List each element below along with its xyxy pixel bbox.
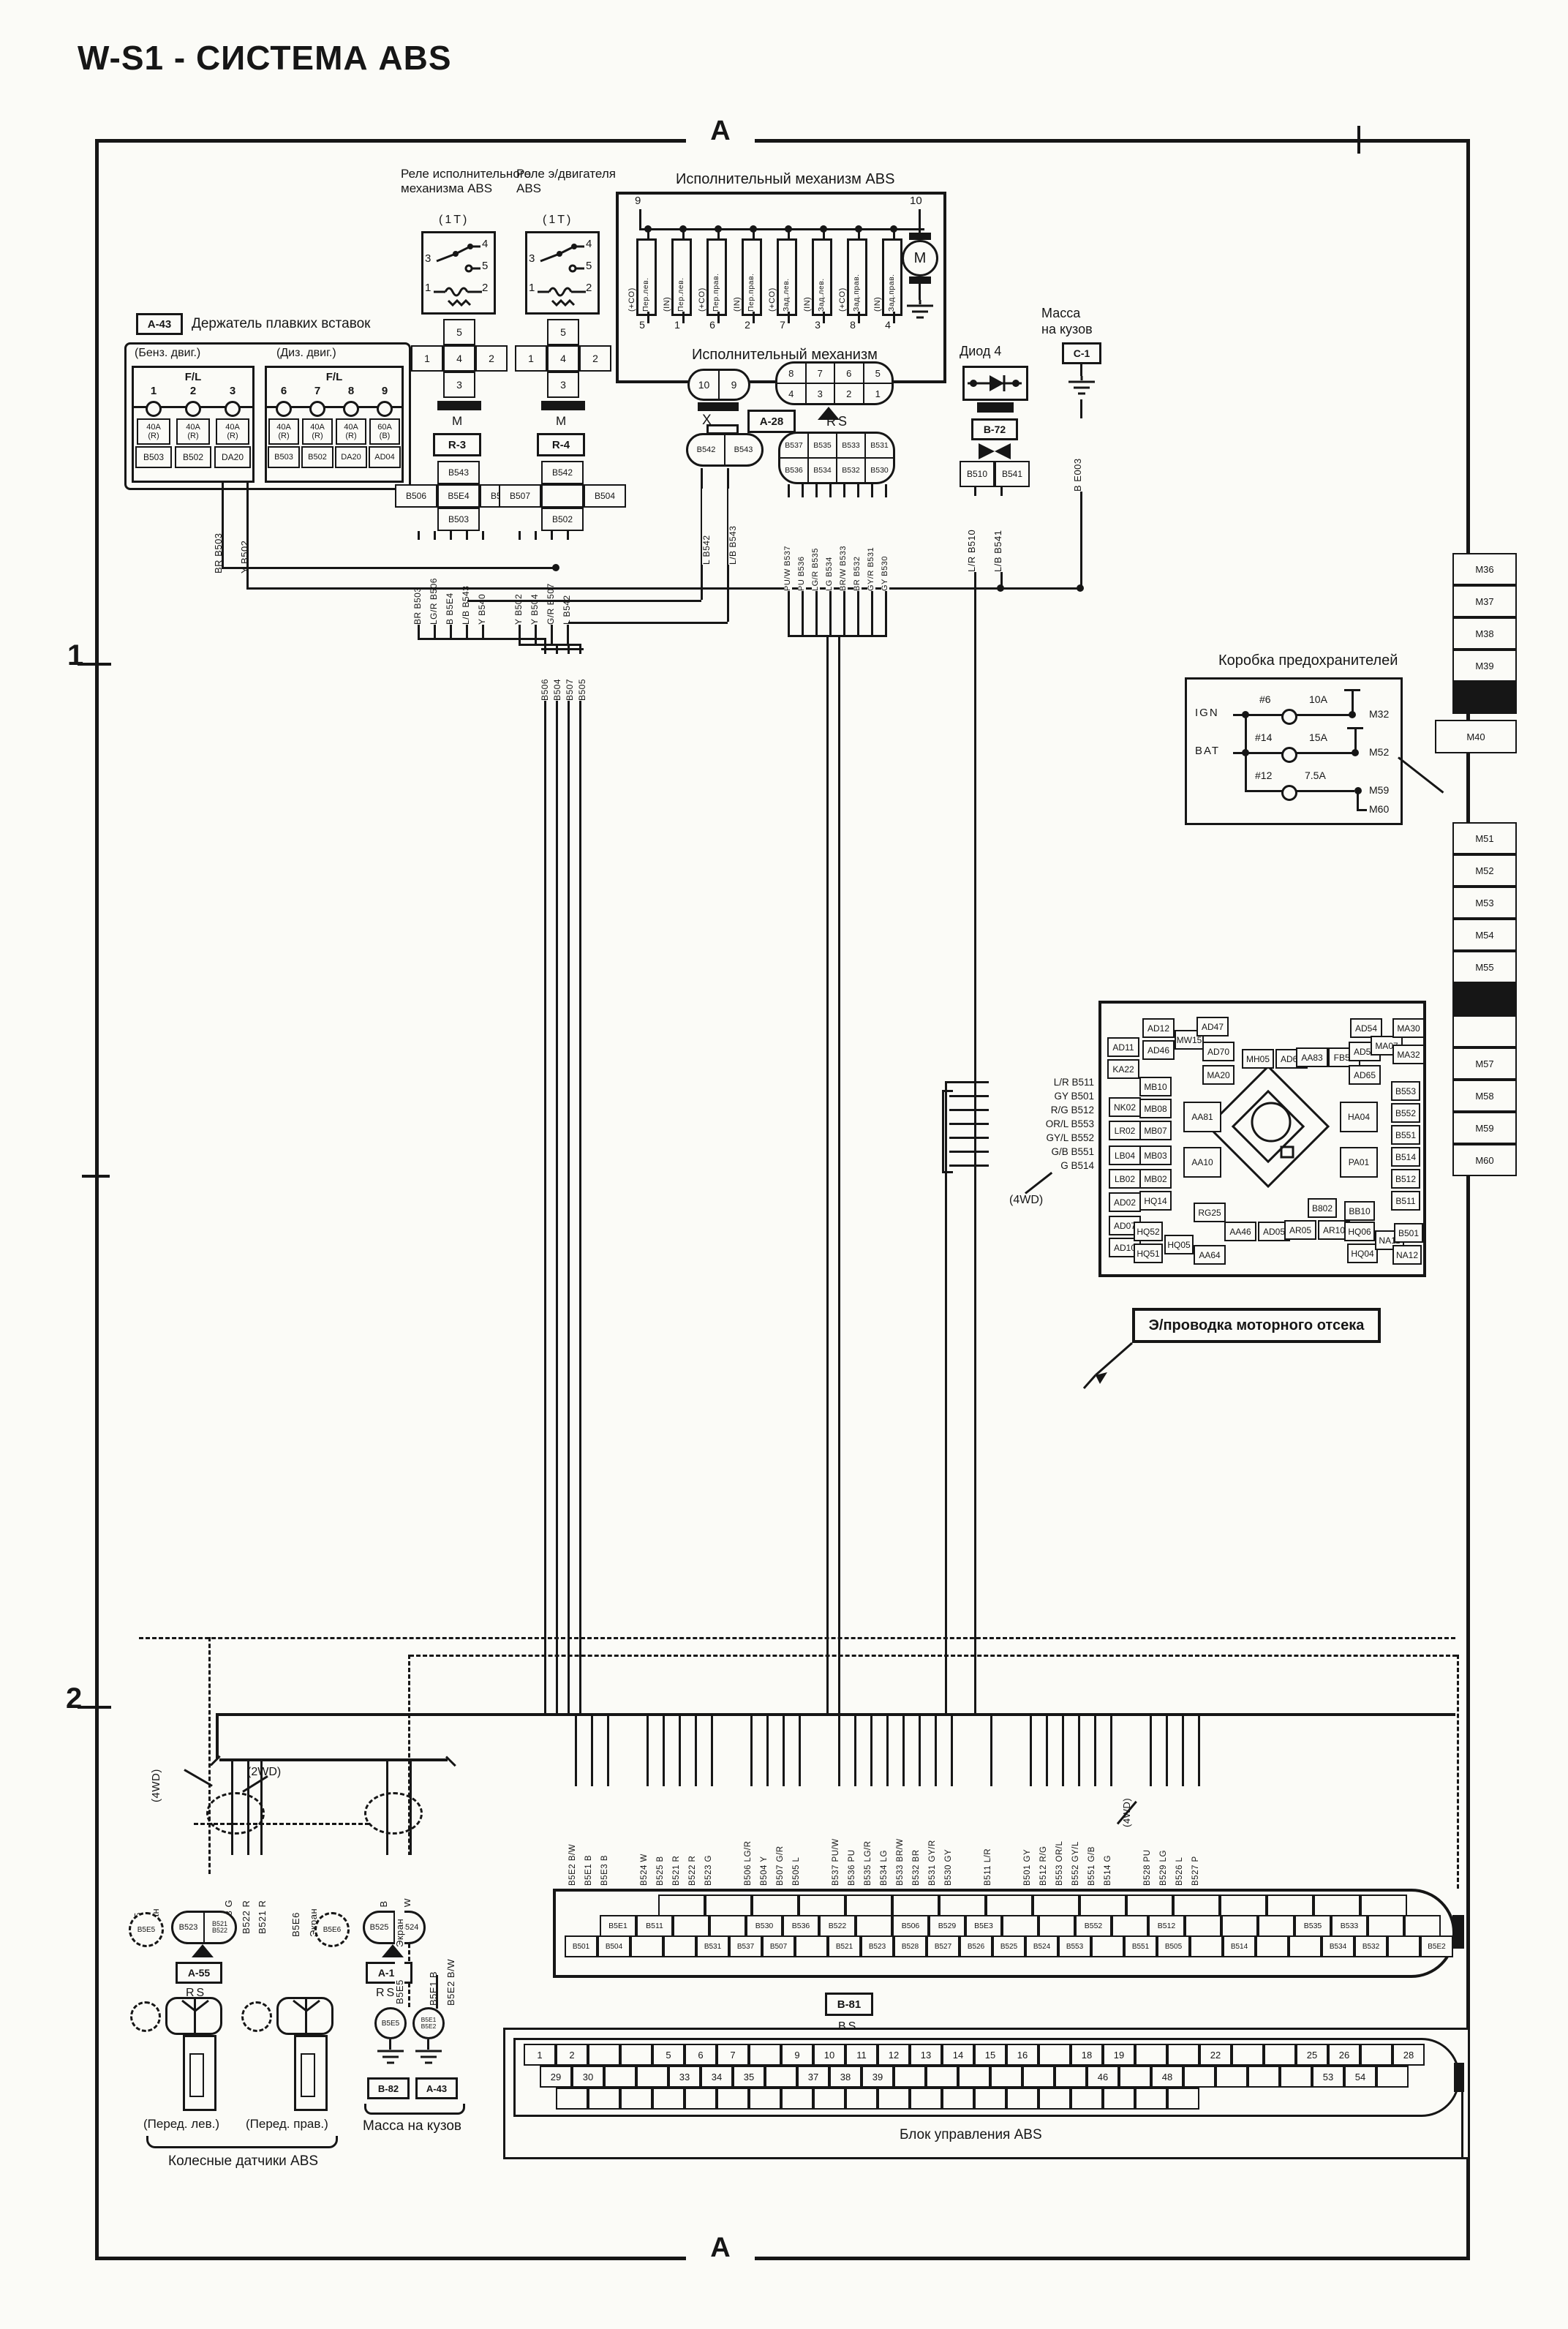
m-connector: M57 <box>1452 1047 1517 1080</box>
ecu-cell: B529 <box>929 1915 965 1937</box>
solenoid-pin: 5 <box>639 319 645 331</box>
fusebox-ign: IGN <box>1195 707 1219 719</box>
gnd-top-caption: Масса <box>1041 306 1080 321</box>
ecu-cell: B553 <box>1058 1935 1091 1957</box>
panel-connector: B514 <box>1391 1147 1420 1167</box>
wire-label: GY B530 <box>881 497 889 591</box>
diode-box <box>962 366 1028 401</box>
ecu-cell <box>799 1895 845 1916</box>
shield-conn: B5E6 <box>314 1912 350 1947</box>
ecu-cell: B526 <box>960 1935 992 1957</box>
fuse-sym <box>1281 747 1297 763</box>
wire-label: B504 Y <box>761 1786 769 1886</box>
relay2-wire-labels: Y B502Y B504G/R B507L B542 <box>510 540 575 625</box>
relay-pin: 5 <box>482 260 488 272</box>
ecu-cell: B552 <box>1075 1915 1112 1937</box>
fuse-symbol <box>146 401 162 417</box>
panel-connector: AD70 <box>1202 1042 1235 1061</box>
pin-number <box>1022 2066 1055 2088</box>
actuator-title: Исполнительный механизм ABS <box>676 171 894 188</box>
wire-label: B522 R <box>241 1855 251 1934</box>
pin-row-3 <box>556 2088 1199 2110</box>
pin-number <box>974 2088 1006 2110</box>
sensor-ring <box>241 2001 272 2032</box>
pin10-label: 10 <box>910 195 922 207</box>
shield-label: Экран <box>395 1896 404 1947</box>
junction-dot <box>1077 584 1084 592</box>
pin-number: 10 <box>813 2044 845 2066</box>
conn-cell: B536 <box>780 459 807 482</box>
fuse-number: 2 <box>190 385 196 397</box>
sensor-caption-right: (Перед. прав.) <box>246 2117 328 2132</box>
solenoid-pin: 7 <box>780 319 785 331</box>
antenna <box>1344 689 1360 691</box>
solenoid: (IN) Зад.лев. 3 <box>800 233 835 342</box>
pin-number: 18 <box>1071 2044 1103 2066</box>
ecu-cell <box>1221 1915 1258 1937</box>
wire <box>1245 790 1354 792</box>
wire-label: G/B B551 <box>989 1146 1094 1160</box>
wire-label: Y B504 <box>530 540 539 625</box>
ecu-cell <box>1387 1935 1420 1957</box>
shield-link-dashed <box>194 1823 369 1825</box>
m-connector: M37 <box>1452 585 1517 617</box>
pin-number <box>652 2088 685 2110</box>
pin-number <box>1039 2044 1071 2066</box>
pin-cell: B5E4 <box>437 484 480 508</box>
ecu-cell: B532 <box>1354 1935 1387 1957</box>
pin-number <box>1376 2066 1409 2088</box>
fuse-number: 3 <box>230 385 235 397</box>
wire <box>389 2039 391 2050</box>
conn-cell: B525 <box>365 1913 393 1942</box>
ecu-cell <box>663 1935 696 1957</box>
wire-label: Y B502 <box>514 540 523 625</box>
panel-connector: AD02 <box>1109 1192 1141 1212</box>
m-connector: M53 <box>1452 887 1517 919</box>
rs-wire-labels: PU/W B537PU B536LG/R B535LG B534BR/W B53… <box>781 497 892 591</box>
relay1-conn-bot: 3 <box>443 372 475 398</box>
conn-cell: B532 <box>836 459 864 482</box>
callout-arrow <box>1074 1340 1139 1399</box>
pin-number: 13 <box>910 2044 942 2066</box>
conn-cell: 8 <box>777 364 805 383</box>
wire <box>1080 364 1082 376</box>
ecu-cell <box>1002 1915 1039 1937</box>
fuse-sym <box>1281 785 1297 801</box>
wire <box>1357 809 1367 811</box>
wire-label: B E003 <box>1073 418 1082 492</box>
conn-cell: 2 <box>579 345 611 372</box>
pin-number: 29 <box>540 2066 572 2088</box>
ecu-cell <box>658 1895 705 1916</box>
petrol-caption: (Бенз. двиг.) <box>135 347 200 360</box>
ground-icon <box>1067 376 1096 398</box>
connector-key <box>698 402 739 411</box>
petrol-box: F/L 123 40A(R) 40A(R) 40A(R) B503B502DA2… <box>132 366 255 483</box>
solenoid-pin: 1 <box>674 319 680 331</box>
panel-connector: PA01 <box>1340 1147 1378 1178</box>
solenoid-mode: (+CO) <box>698 238 706 312</box>
pin-number: 22 <box>1199 2044 1232 2066</box>
fusebox-title: Коробка предохранителей <box>1218 652 1398 669</box>
ecu-cell: B523 <box>861 1935 894 1957</box>
panel-connector: B552 <box>1391 1103 1420 1123</box>
conn-cell: B521 B522 <box>203 1913 235 1942</box>
ecu-cell <box>986 1895 1033 1916</box>
wheel-sensors-caption: Колесные датчики ABS <box>168 2153 318 2170</box>
m-strip-top: M36M37M38M39 <box>1452 553 1517 714</box>
pin-number: 38 <box>829 2066 862 2088</box>
fusebox-out: M52 <box>1369 746 1389 758</box>
fuse-pin-id: B502 <box>301 446 333 468</box>
shield-ellipse <box>364 1792 423 1835</box>
ecu-tab <box>1452 1915 1464 1949</box>
ecu-cell: B534 <box>1322 1935 1354 1957</box>
tick <box>1357 126 1360 154</box>
ground-icon <box>905 300 935 322</box>
panel-connector: RG25 <box>1194 1203 1226 1222</box>
panel-connector: B512 <box>1391 1169 1420 1189</box>
panel-connector: LB02 <box>1109 1169 1141 1189</box>
note-4wd-vert: (4WD) <box>151 1720 162 1802</box>
m-strip-bottom: M51M52M53M54M55M57M58M59M60 <box>1452 822 1517 1176</box>
panel-connector: MB10 <box>1139 1077 1172 1096</box>
wire <box>418 638 546 640</box>
pin-number <box>749 2044 781 2066</box>
relay-pin: 4 <box>586 238 592 250</box>
wire <box>216 1713 219 1758</box>
trunk-wire <box>974 487 976 1713</box>
wire-label: B530 GY <box>945 1786 954 1886</box>
fuse-holder-title: Держатель плавких вставок <box>192 316 371 332</box>
solenoid-pin: 4 <box>885 319 891 331</box>
wire-label: B514 G <box>1104 1786 1113 1886</box>
wire <box>436 1975 438 2009</box>
connector-tab <box>706 424 739 434</box>
wire-label: L B542 <box>702 489 711 565</box>
fuse-rating: 40A(R) <box>137 418 170 445</box>
ecu-cell: B531 <box>696 1935 729 1957</box>
trunk-wire <box>826 635 829 1713</box>
panel-connector: NA12 <box>1392 1245 1422 1265</box>
connector-id-a55: A-55 <box>176 1962 222 1984</box>
ecu-cell: B504 <box>598 1935 630 1957</box>
fuse-number: 6 <box>281 385 287 397</box>
pin-number: 1 <box>524 2044 556 2066</box>
pin-cell: B504 <box>584 484 626 508</box>
pin-number <box>813 2088 845 2110</box>
fuse-number: 9 <box>382 385 388 397</box>
wire-label: B512 R/G <box>1040 1786 1049 1886</box>
fuse-number: 7 <box>314 385 320 397</box>
wire-label: B506 LG/R <box>745 1786 753 1886</box>
ecu-cell: B5E3 <box>965 1915 1002 1937</box>
conn-cell: 4 <box>547 345 579 372</box>
ecu-cell: B530 <box>746 1915 783 1937</box>
conn-cell: 3 <box>805 384 834 403</box>
relay-pin: 2 <box>586 282 592 294</box>
fuse-symbol <box>276 401 292 417</box>
fusebox-bat: BAT <box>1195 745 1220 757</box>
sensor-body <box>183 2035 216 2111</box>
wire-label: B533 BR/W <box>897 1786 905 1886</box>
wire-label: B521 R <box>673 1786 682 1886</box>
panel-connector: B802 <box>1308 1198 1337 1218</box>
pin-number <box>894 2066 926 2088</box>
pin-number <box>1264 2044 1296 2066</box>
solenoid-name: Зад.прав. <box>888 243 896 312</box>
panel-connector: LB04 <box>1109 1145 1141 1165</box>
wire-label: B551 G/B <box>1088 1786 1097 1886</box>
pin-number <box>636 2066 668 2088</box>
wire-label: B521 R <box>257 1855 267 1934</box>
ecu-cell <box>1173 1895 1220 1916</box>
connector-key <box>437 401 481 410</box>
pin-number: 25 <box>1296 2044 1328 2066</box>
ecu-cell: B507 <box>762 1935 795 1957</box>
note-4wd: (4WD) <box>1009 1194 1043 1207</box>
wire-label: B536 PU <box>848 1786 857 1886</box>
fuse-pin-id: AD04 <box>369 446 401 468</box>
pin-number: 7 <box>717 2044 749 2066</box>
panel-connector: B511 <box>1391 1191 1420 1211</box>
solenoid-name: Пер.прав. <box>712 243 720 312</box>
wire <box>246 483 249 587</box>
ecu-cell <box>1112 1915 1148 1937</box>
ecu-cell <box>1267 1895 1313 1916</box>
m-connector <box>1452 983 1517 1015</box>
fuse-rating: 60A(B) <box>369 418 400 445</box>
panel-connector: LR02 <box>1109 1121 1141 1140</box>
connector-id-a28: A-28 <box>747 410 796 433</box>
pin-number <box>604 2066 636 2088</box>
relay2-pin-bot: B502 <box>541 508 584 531</box>
ecu-cell: B5E1 <box>600 1915 636 1937</box>
connector-id-a43b: A-43 <box>415 2077 458 2099</box>
trunk-wire <box>838 635 840 1713</box>
fuse-rating: 40A(R) <box>216 418 249 445</box>
solenoid-mode: (IN) <box>663 238 671 312</box>
panel-connector: HQ05 <box>1164 1235 1194 1254</box>
wire-label: B507 G/R <box>777 1786 785 1886</box>
relay-pin: 4 <box>482 238 488 250</box>
pin-number: 53 <box>1312 2066 1344 2088</box>
relay-pin: 1 <box>425 282 431 294</box>
trunk-wire <box>945 1083 947 1713</box>
bus-dashed <box>139 1637 1455 1639</box>
wire <box>246 587 1081 590</box>
wire <box>222 567 556 569</box>
wire-label: B537 PU/W <box>832 1786 841 1886</box>
relay1-m: M <box>452 414 462 429</box>
wire-label: L B542 <box>562 540 571 625</box>
panel-connector: MH05 <box>1242 1049 1274 1069</box>
conn-cell: 5 <box>863 364 892 383</box>
pin-number: 11 <box>845 2044 878 2066</box>
wire-label: L/B B541 <box>993 496 1003 572</box>
conn-cell: B537 <box>780 434 807 457</box>
wire-label: B506 <box>540 654 549 701</box>
wire-label: B501 GY <box>1024 1786 1033 1886</box>
m-connector <box>1452 682 1517 714</box>
conn-cell: 7 <box>805 364 834 383</box>
panel-connector: AA46 <box>1224 1222 1256 1241</box>
m-connector: M58 <box>1452 1080 1517 1112</box>
wire <box>639 209 641 230</box>
panel-connector: B553 <box>1391 1081 1420 1101</box>
wire-label: L/B B543 <box>728 489 737 565</box>
ecu-caption: Блок управления ABS <box>900 2127 1042 2143</box>
pin-number <box>588 2044 620 2066</box>
fusebox-out: M59 <box>1369 784 1389 796</box>
relay2-pin-top: B542 <box>541 461 584 484</box>
wire-label: B505 <box>578 654 587 701</box>
wire <box>949 1109 989 1111</box>
panel-connector: AA10 <box>1183 1147 1221 1178</box>
pin-number <box>1135 2088 1167 2110</box>
panel-connector: AR05 <box>1284 1220 1316 1240</box>
pin-cell: B507 <box>499 484 541 508</box>
fuse-amp: 10A <box>1309 693 1327 705</box>
connector-id-b82: B-82 <box>367 2077 410 2099</box>
ecu-cell: B514 <box>1223 1935 1256 1957</box>
solenoid-mode: (+CO) <box>839 238 847 312</box>
panel-connector: AA64 <box>1194 1245 1226 1265</box>
oval-wire-labels: L B542L/B B543 <box>693 489 746 565</box>
pin-number <box>1167 2044 1199 2066</box>
wire-label: L/R B511 <box>989 1077 1094 1091</box>
panel-connector: MB02 <box>1139 1169 1172 1189</box>
bundle-brace <box>541 648 584 650</box>
pin-number <box>1360 2044 1392 2066</box>
wire-label: B523 G <box>705 1786 714 1886</box>
relay-pin: 2 <box>482 282 488 294</box>
panel-connector: B551 <box>1391 1125 1420 1145</box>
brace <box>942 1090 953 1173</box>
wire-label: B5E2 B/W <box>446 1947 456 2006</box>
sensor-conn-left: B523 B521 B522 <box>171 1911 237 1944</box>
wire-label: GY/R B531 <box>867 497 875 591</box>
m-connector: M54 <box>1452 919 1517 951</box>
wire-label: G/R B507 <box>546 540 555 625</box>
wire <box>467 600 701 602</box>
m-connector: M59 <box>1452 1112 1517 1144</box>
pin-row-1: 12567910111213141516181922252628 <box>524 2044 1425 2066</box>
ground-icon <box>414 2050 443 2070</box>
pin-number: 19 <box>1103 2044 1135 2066</box>
bus-dashed <box>410 1655 1457 1657</box>
strip-tab <box>1454 2063 1464 2092</box>
bracket-line <box>219 1758 448 1761</box>
wire-label: LG/R B535 <box>812 497 820 591</box>
m-connector: M60 <box>1452 1144 1517 1176</box>
solenoid-mode: (IN) <box>734 238 742 312</box>
ecu-cell: B522 <box>819 1915 856 1937</box>
solenoid: (+CO) Зад.лев. 7 <box>765 233 800 342</box>
relay1-conn-top: 5 <box>443 319 475 345</box>
pin-number <box>717 2088 749 2110</box>
m-connector: M38 <box>1452 617 1517 650</box>
ground-caption: Масса на кузов <box>363 2118 461 2134</box>
pin-cell: B541 <box>995 461 1030 487</box>
relay2-conn-mid: 142 <box>515 345 611 372</box>
pin-number <box>1215 2066 1248 2088</box>
pin-number: 39 <box>862 2066 894 2088</box>
panel-connector: HQ51 <box>1134 1243 1163 1263</box>
solenoid-mode: (+CO) <box>769 238 777 312</box>
ground-conn: B5E5 <box>374 2007 407 2039</box>
brace-under <box>364 2104 465 2115</box>
panel-connector: AD54 <box>1350 1018 1382 1038</box>
relay-pin: 1 <box>529 282 535 294</box>
panel-connector: AD11 <box>1107 1037 1139 1057</box>
ecu-cell: B521 <box>828 1935 861 1957</box>
fuse-number: 1 <box>151 385 157 397</box>
wire-label: R/G B512 <box>989 1105 1094 1118</box>
connector-id-a16: A-16 <box>366 1962 412 1984</box>
ecu-cell <box>795 1935 828 1957</box>
ecu-cell <box>1360 1895 1407 1916</box>
ecu-cell: B528 <box>894 1935 927 1957</box>
m-connector: M55 <box>1452 951 1517 983</box>
tick <box>78 1706 111 1709</box>
panel-connector: AA83 <box>1296 1047 1328 1067</box>
ecu-cell <box>845 1895 892 1916</box>
fuse-pin-id: B503 <box>268 446 300 468</box>
relay1-box: 3 4 5 1 2 <box>421 231 496 315</box>
ecu-cell: B551 <box>1124 1935 1157 1957</box>
junction-dot <box>1349 711 1356 718</box>
conn-cell: 2 <box>834 384 863 403</box>
ecu-cell: B525 <box>992 1935 1025 1957</box>
ecu-cell <box>1313 1895 1360 1916</box>
pin-number <box>620 2044 652 2066</box>
junction-dot <box>1242 711 1249 718</box>
wire <box>919 284 921 300</box>
pin-cell <box>541 484 584 508</box>
bowtie-icon <box>979 443 1011 459</box>
solenoid-pin: 2 <box>745 319 750 331</box>
ecu-cell: B536 <box>783 1915 819 1937</box>
pin-number <box>1183 2066 1215 2088</box>
pin-row-2: 293033343537383946485354 <box>540 2066 1409 2088</box>
pin-number: 26 <box>1328 2044 1360 2066</box>
ecu-cell <box>939 1895 986 1916</box>
relay2-conn-bot: 3 <box>547 372 579 398</box>
bus-line <box>216 1713 1455 1716</box>
pin-number: 14 <box>942 2044 974 2066</box>
wire-label: B504 <box>553 654 562 701</box>
panel-connector: KA22 <box>1107 1059 1139 1079</box>
fuse-amp: 7.5A <box>1305 770 1326 781</box>
wire-label: BR B503 <box>413 540 422 625</box>
wire <box>1461 2089 1463 2159</box>
pin-number <box>990 2066 1022 2088</box>
wire-label: G B514 <box>989 1160 1094 1174</box>
diesel-box: F/L 6789 40A(R) 40A(R) 40A(R) 60A(B) B50 <box>265 366 404 483</box>
wire-label: B535 LG/R <box>864 1786 873 1886</box>
fusebox-out-extra: M60 <box>1369 803 1389 815</box>
relay1-pin-top: B543 <box>437 461 480 484</box>
wire-label: B5E2 B/W <box>569 1786 578 1886</box>
fuse-symbol <box>225 401 241 417</box>
wire-label: B552 GY/L <box>1072 1786 1081 1886</box>
fuse-rating: 40A(R) <box>302 418 333 445</box>
ecu-row-top <box>658 1895 1407 1916</box>
pin-number <box>1248 2066 1280 2088</box>
fuse-sym <box>1281 709 1297 725</box>
